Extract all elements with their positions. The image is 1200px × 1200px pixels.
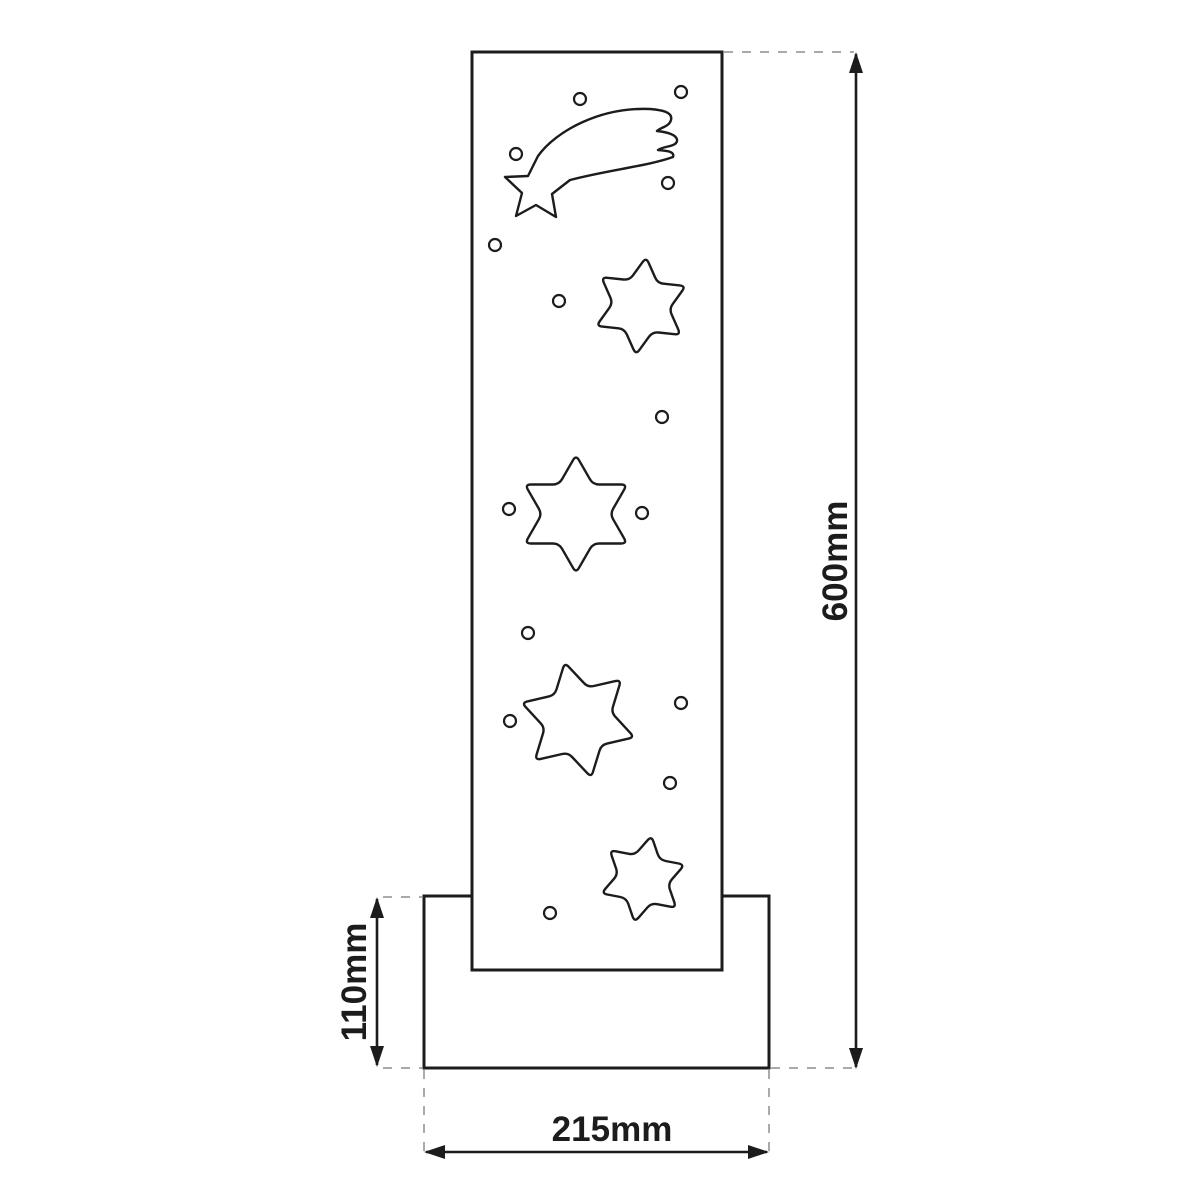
dimension-label-base-height: 110mm [335,923,375,1042]
hole-cutout [503,503,515,515]
hole-cutout [544,907,556,919]
dimension-arrow-right-base-width [748,1145,769,1159]
dimension-arrow-down-base-height [370,1046,384,1067]
hole-cutout [656,411,668,423]
hole-cutout [675,86,687,98]
hole-cutout [504,715,516,727]
hole-cutout [574,93,586,105]
hole-cutout [489,239,501,251]
dimension-arrow-up-base-height [370,897,384,918]
dimension-arrow-down-total-height [849,1048,863,1069]
diagram-svg [0,0,1200,1200]
technical-drawing: 600mm 110mm 215mm [0,0,1200,1200]
hole-cutout [664,777,676,789]
hole-cutout [662,177,674,189]
dimension-arrow-left-base-width [424,1145,445,1159]
dimension-label-base-width: 215mm [552,1110,673,1150]
hole-cutout [522,627,534,639]
hole-cutout [510,148,522,160]
dimension-label-total-height: 600mm [816,501,856,622]
hole-cutout [553,295,565,307]
dimension-arrow-up-total-height [849,52,863,73]
hole-cutout [675,697,687,709]
hole-cutout [636,507,648,519]
